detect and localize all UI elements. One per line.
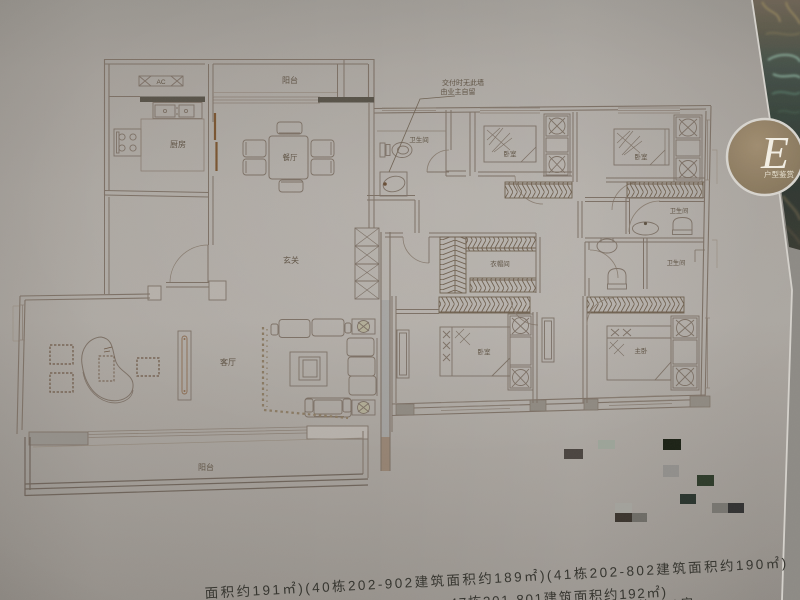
svg-text:厨房: 厨房: [170, 139, 186, 149]
svg-text:交付时无此墙: 交付时无此墙: [442, 78, 484, 87]
svg-text:卧室: 卧室: [504, 149, 518, 158]
svg-text:由业主自留: 由业主自留: [441, 87, 476, 96]
svg-text:卫生间: 卫生间: [409, 135, 429, 144]
svg-text:卫生间: 卫生间: [670, 207, 689, 215]
svg-text:阳台: 阳台: [198, 462, 214, 472]
svg-text:卧室: 卧室: [635, 152, 649, 161]
svg-text:47栋201-801建筑面积约192㎡): 47栋201-801建筑面积约192㎡): [449, 585, 668, 600]
svg-text:玄关: 玄关: [283, 255, 299, 265]
svg-text:户型鉴赏: 户型鉴赏: [764, 169, 794, 179]
svg-text:餐厅: 餐厅: [283, 153, 298, 162]
svg-text:衣帽间: 衣帽间: [490, 259, 510, 268]
svg-text:客厅: 客厅: [220, 357, 236, 367]
svg-text:卧室: 卧室: [478, 347, 492, 356]
svg-text:主卧: 主卧: [635, 346, 649, 355]
svg-text:阳台: 阳台: [282, 75, 298, 85]
svg-text:卫生间: 卫生间: [667, 259, 686, 267]
svg-text:AC: AC: [156, 79, 165, 86]
